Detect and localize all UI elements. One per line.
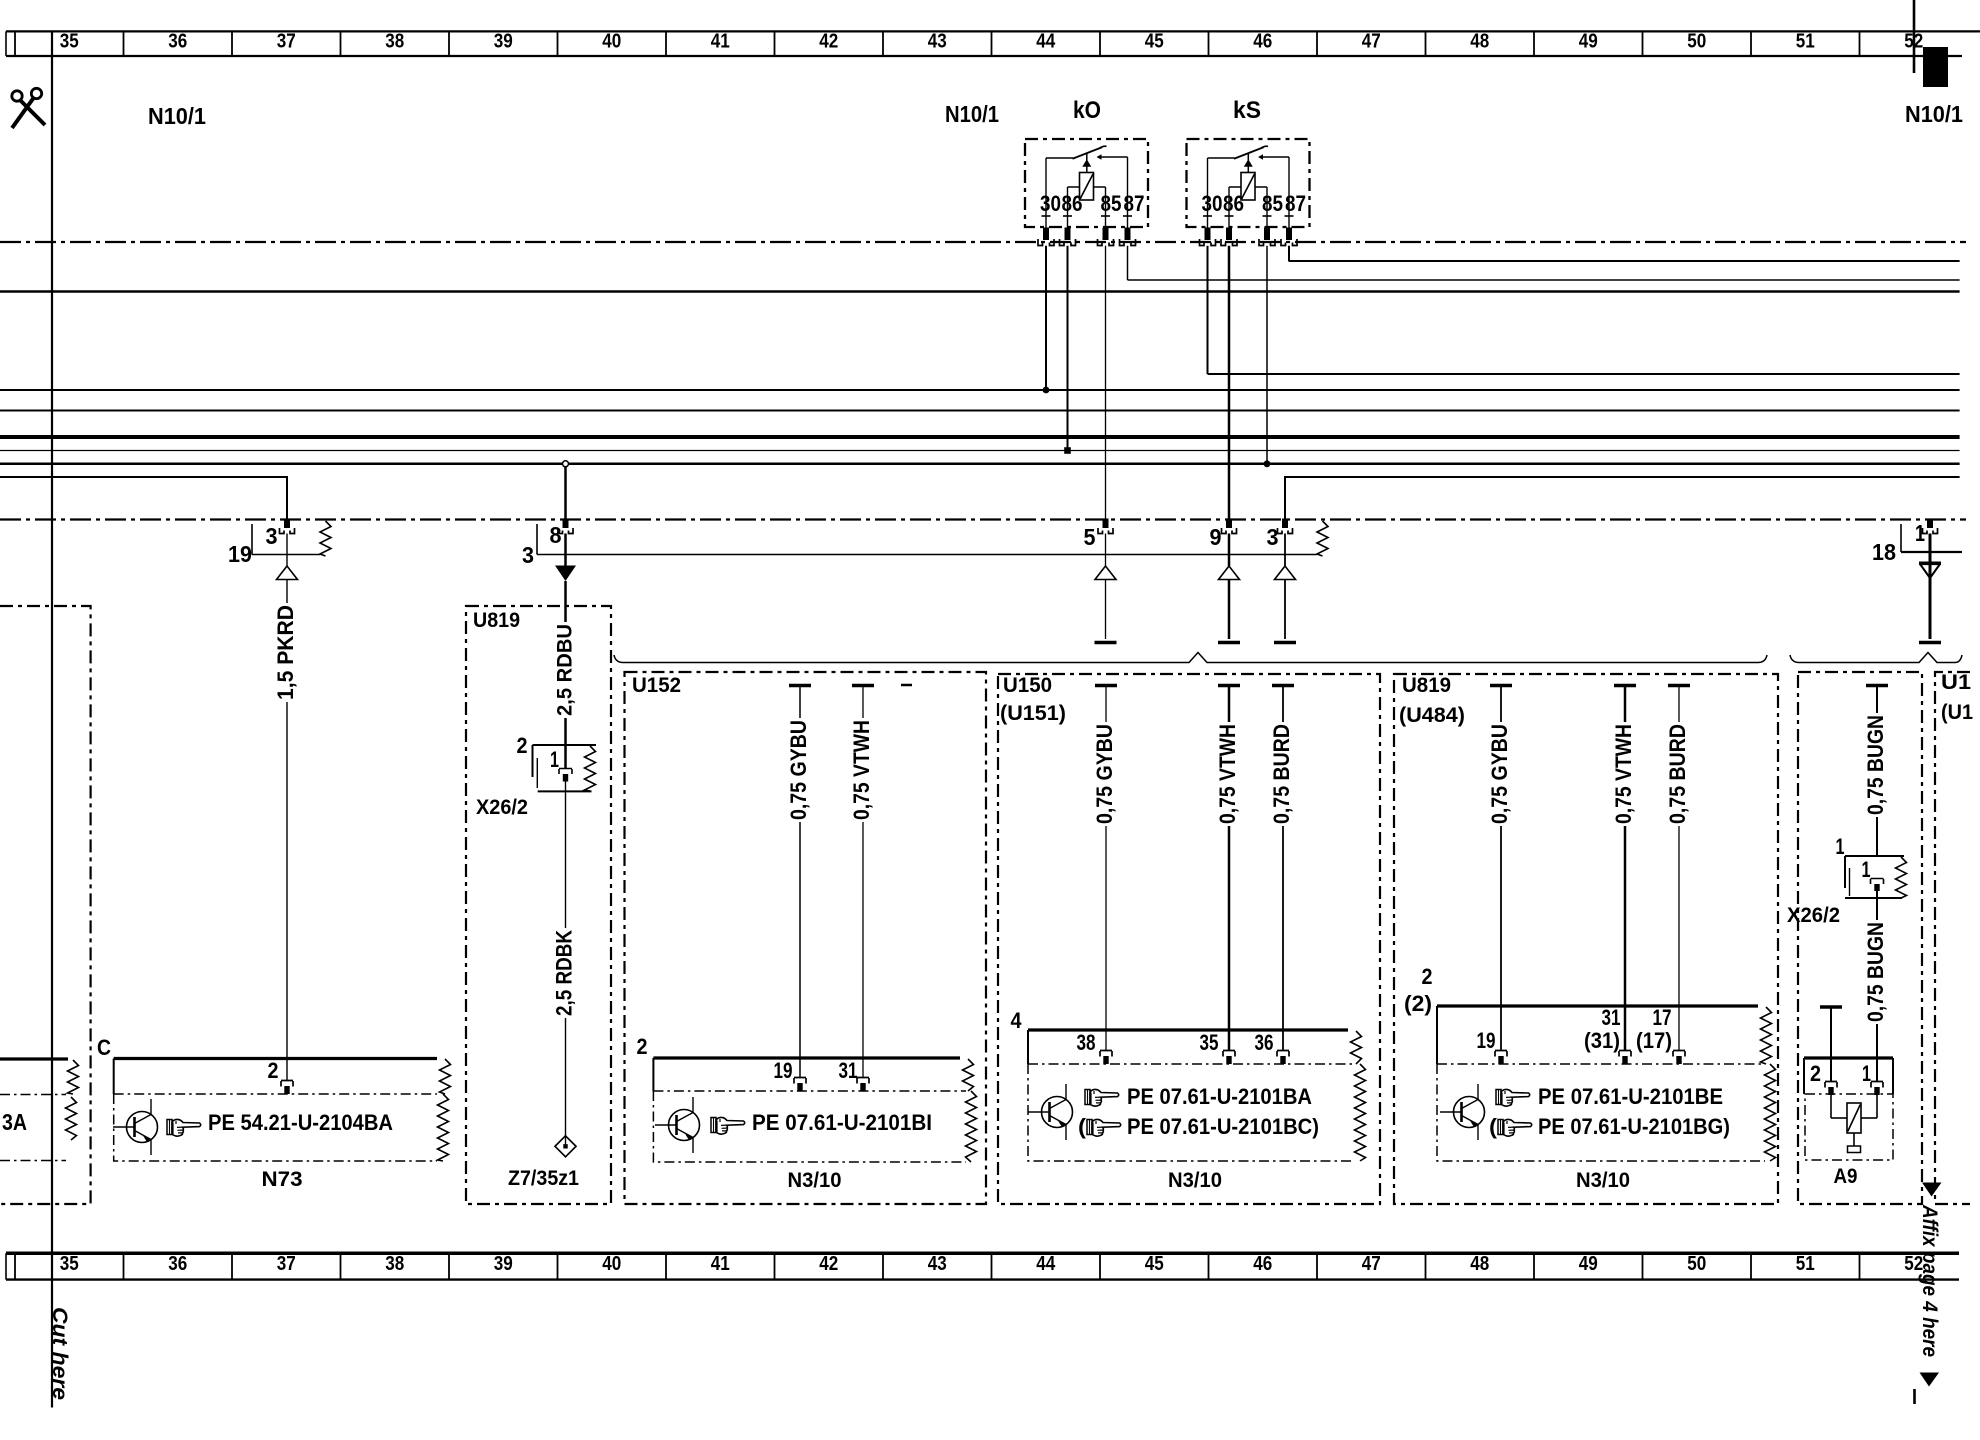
svg-text:48: 48	[1470, 1253, 1489, 1275]
svg-text:87: 87	[1124, 191, 1145, 216]
svg-text:Z7/35z1: Z7/35z1	[508, 1167, 579, 1190]
svg-text:86: 86	[1062, 191, 1083, 216]
svg-text:U819: U819	[1402, 674, 1451, 697]
svg-text:1: 1	[1915, 520, 1925, 546]
svg-text:37: 37	[277, 31, 296, 53]
svg-text:30: 30	[1202, 191, 1223, 216]
svg-text:36: 36	[1255, 1030, 1274, 1055]
svg-text:46: 46	[1253, 31, 1272, 53]
svg-text:(2): (2)	[1404, 991, 1432, 1016]
svg-text:2: 2	[268, 1058, 279, 1083]
svg-text:44: 44	[1036, 31, 1056, 53]
svg-text:kO: kO	[1073, 97, 1101, 124]
svg-text:0,75 BURD: 0,75 BURD	[1665, 724, 1690, 824]
svg-text:50: 50	[1687, 1253, 1706, 1275]
svg-text:86: 86	[1223, 191, 1244, 216]
svg-text:(: (	[1489, 1114, 1498, 1139]
svg-text:0,75 VTWH: 0,75 VTWH	[849, 720, 874, 820]
svg-text:0,75 GYBU: 0,75 GYBU	[786, 720, 811, 820]
svg-text:39: 39	[494, 31, 513, 53]
svg-text:0,75 BUGN: 0,75 BUGN	[1863, 922, 1888, 1022]
svg-text:35: 35	[60, 1253, 79, 1275]
svg-text:(31): (31)	[1584, 1028, 1620, 1053]
svg-text:PE 07.61-U-2101BG): PE 07.61-U-2101BG)	[1538, 1114, 1730, 1139]
svg-text:(U151): (U151)	[1000, 702, 1066, 725]
svg-text:36: 36	[168, 1253, 187, 1275]
svg-text:38: 38	[385, 31, 404, 53]
svg-text:2: 2	[637, 1034, 648, 1059]
svg-text:85: 85	[1262, 191, 1283, 216]
svg-text:38: 38	[1077, 1030, 1096, 1055]
svg-text:41: 41	[711, 31, 730, 53]
svg-text:PE 07.61-U-2101BI: PE 07.61-U-2101BI	[752, 1110, 932, 1135]
svg-text:1: 1	[550, 747, 559, 772]
svg-text:30: 30	[1040, 191, 1061, 216]
svg-text:Affix page 4 here: Affix page 4 here	[1918, 1204, 1941, 1357]
svg-text:35: 35	[60, 31, 79, 53]
svg-text:37: 37	[277, 1253, 296, 1275]
svg-text:PE 54.21-U-2104BA: PE 54.21-U-2104BA	[208, 1110, 393, 1135]
svg-text:0,75 VTWH: 0,75 VTWH	[1215, 724, 1240, 824]
svg-text:(: (	[1078, 1114, 1087, 1139]
svg-text:3: 3	[1267, 524, 1279, 550]
svg-text:9: 9	[1210, 524, 1222, 550]
svg-text:Cut here: Cut here	[48, 1307, 71, 1400]
svg-text:PE 07.61-U-2101BC): PE 07.61-U-2101BC)	[1127, 1114, 1319, 1139]
svg-text:1: 1	[1862, 857, 1871, 882]
svg-text:51: 51	[1796, 1253, 1815, 1275]
svg-text:4: 4	[1011, 1008, 1023, 1033]
svg-text:45: 45	[1145, 1253, 1164, 1275]
svg-text:2: 2	[1810, 1061, 1821, 1086]
svg-text:0,75 GYBU: 0,75 GYBU	[1487, 724, 1512, 824]
svg-text:44: 44	[1036, 1253, 1056, 1275]
svg-text:3: 3	[266, 523, 278, 549]
svg-text:43: 43	[928, 1253, 947, 1275]
svg-text:(17): (17)	[1636, 1028, 1672, 1053]
svg-text:43: 43	[928, 31, 947, 53]
svg-text:X26/2: X26/2	[476, 796, 528, 819]
svg-text:19: 19	[774, 1058, 793, 1083]
svg-text:N10/1: N10/1	[945, 101, 999, 127]
svg-text:2: 2	[1422, 964, 1433, 989]
svg-text:46: 46	[1253, 1253, 1272, 1275]
svg-text:2: 2	[517, 733, 528, 758]
svg-text:41: 41	[711, 1253, 730, 1275]
svg-text:47: 47	[1362, 1253, 1381, 1275]
svg-text:0,75 BUGN: 0,75 BUGN	[1863, 715, 1888, 815]
svg-text:8: 8	[550, 522, 562, 548]
svg-text:40: 40	[602, 31, 621, 53]
svg-text:35: 35	[1200, 1030, 1219, 1055]
svg-text:85: 85	[1101, 191, 1122, 216]
svg-text:36: 36	[168, 31, 187, 53]
svg-text:42: 42	[819, 1253, 838, 1275]
svg-text:38: 38	[385, 1253, 404, 1275]
svg-text:51: 51	[1796, 31, 1815, 53]
svg-text:1,5 PKRD: 1,5 PKRD	[273, 605, 298, 700]
svg-text:N3/10: N3/10	[1168, 1169, 1222, 1192]
svg-text:31: 31	[1602, 1005, 1621, 1030]
svg-text:N10/1: N10/1	[1905, 101, 1963, 127]
svg-text:3: 3	[522, 542, 534, 568]
svg-text:87: 87	[1285, 191, 1306, 216]
svg-text:U152: U152	[632, 674, 681, 697]
svg-text:kS: kS	[1233, 97, 1261, 124]
svg-text:U1: U1	[1941, 671, 1971, 694]
svg-text:0,75 GYBU: 0,75 GYBU	[1092, 724, 1117, 824]
svg-text:C: C	[97, 1035, 111, 1060]
svg-text:N73: N73	[262, 1168, 303, 1191]
svg-text:45: 45	[1145, 31, 1164, 53]
svg-text:1: 1	[1862, 1061, 1871, 1086]
svg-text:40: 40	[602, 1253, 621, 1275]
svg-text:31: 31	[839, 1058, 858, 1083]
svg-text:2,5 RDBK: 2,5 RDBK	[552, 930, 577, 1016]
svg-text:N3/10: N3/10	[1576, 1169, 1630, 1192]
svg-text:39: 39	[494, 1253, 513, 1275]
svg-text:PE 07.61-U-2101BE: PE 07.61-U-2101BE	[1538, 1084, 1723, 1109]
svg-text:PE 07.61-U-2101BA: PE 07.61-U-2101BA	[1127, 1084, 1312, 1109]
svg-text:52: 52	[1904, 31, 1923, 53]
svg-text:(U484): (U484)	[1399, 704, 1465, 727]
svg-text:X26/2: X26/2	[1787, 904, 1840, 927]
svg-text:49: 49	[1579, 1253, 1598, 1275]
svg-text:2,5 RDBU: 2,5 RDBU	[554, 624, 577, 716]
svg-text:19: 19	[1477, 1028, 1496, 1053]
svg-text:3A: 3A	[2, 1109, 27, 1135]
svg-text:0,75 BURD: 0,75 BURD	[1269, 724, 1294, 824]
svg-text:0,75 VTWH: 0,75 VTWH	[1611, 724, 1636, 824]
svg-text:47: 47	[1362, 31, 1381, 53]
svg-text:1: 1	[1836, 834, 1845, 859]
svg-text:49: 49	[1579, 31, 1598, 53]
svg-text:50: 50	[1687, 31, 1706, 53]
svg-text:19: 19	[228, 541, 252, 567]
svg-text:(U1: (U1	[1941, 701, 1973, 724]
svg-text:17: 17	[1653, 1005, 1672, 1030]
svg-text:N3/10: N3/10	[788, 1169, 842, 1192]
svg-text:18: 18	[1872, 539, 1896, 565]
svg-text:U150: U150	[1003, 674, 1052, 697]
svg-text:48: 48	[1470, 31, 1489, 53]
svg-text:42: 42	[819, 31, 838, 53]
svg-text:5: 5	[1084, 524, 1096, 550]
svg-text:A9: A9	[1834, 1165, 1858, 1188]
svg-text:N10/1: N10/1	[148, 103, 206, 129]
svg-text:U819: U819	[473, 609, 520, 632]
